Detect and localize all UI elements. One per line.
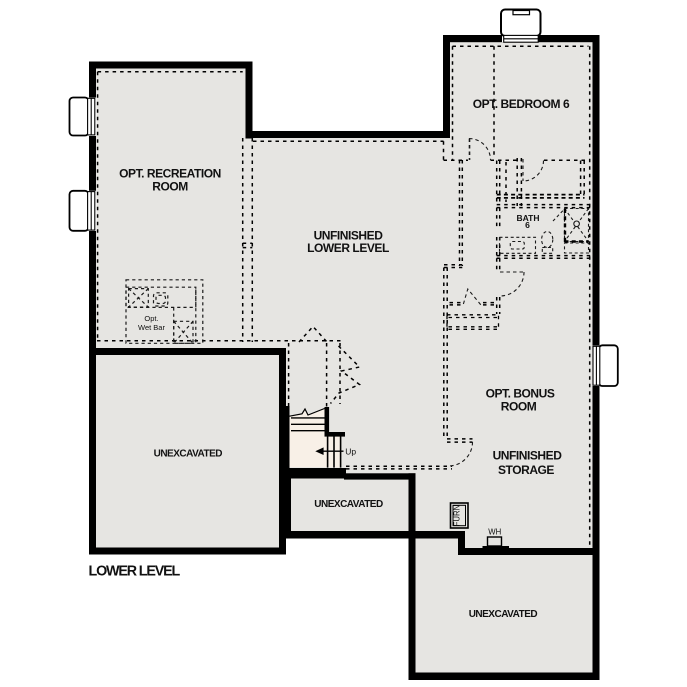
svg-text:Wet Bar: Wet Bar <box>138 323 165 332</box>
svg-text:Opt.: Opt. <box>144 314 158 323</box>
svg-text:STORAGE: STORAGE <box>498 463 554 477</box>
svg-text:UNEXCAVATED: UNEXCAVATED <box>154 449 223 460</box>
svg-text:UNFINISHED: UNFINISHED <box>493 449 563 463</box>
svg-text:UNEXCAVATED: UNEXCAVATED <box>314 499 383 510</box>
svg-text:6: 6 <box>525 220 530 230</box>
svg-text:Up: Up <box>345 447 356 457</box>
svg-text:OPT. BEDROOM 6: OPT. BEDROOM 6 <box>473 97 570 111</box>
svg-text:LOWER LEVEL: LOWER LEVEL <box>89 564 181 580</box>
svg-text:ROOM: ROOM <box>501 400 537 414</box>
svg-text:OPT. BONUS: OPT. BONUS <box>486 387 555 401</box>
svg-text:FURN: FURN <box>453 505 462 527</box>
svg-text:WH: WH <box>488 528 501 537</box>
svg-text:ROOM: ROOM <box>152 180 188 194</box>
svg-text:UNEXCAVATED: UNEXCAVATED <box>469 609 538 620</box>
svg-text:LOWER LEVEL: LOWER LEVEL <box>307 241 389 255</box>
svg-text:OPT. RECREATION: OPT. RECREATION <box>119 167 221 181</box>
